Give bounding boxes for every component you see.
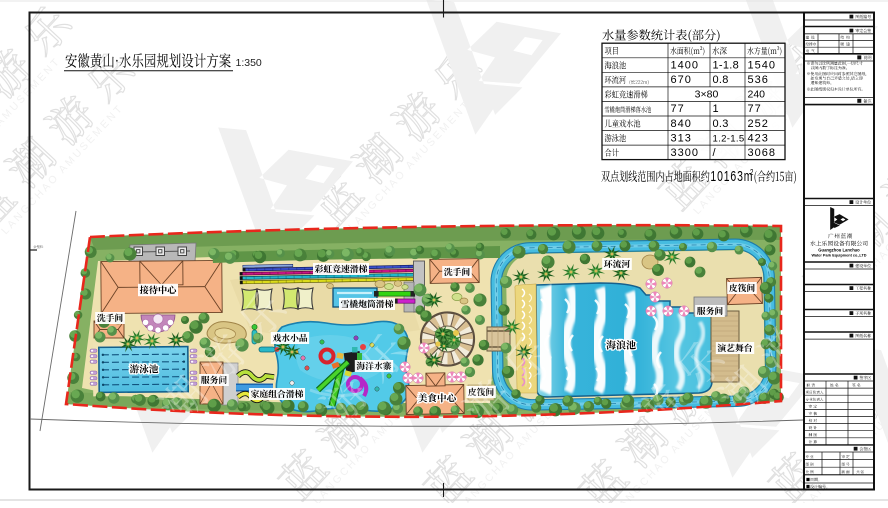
svg-text:0.8: 0.8 [713, 74, 729, 86]
svg-text:3300: 3300 [671, 147, 699, 159]
svg-text:0.3: 0.3 [713, 118, 729, 130]
svg-text:77: 77 [671, 103, 685, 115]
svg-text:313: 313 [671, 132, 692, 144]
svg-text:1: 1 [713, 103, 719, 115]
svg-text:2: 2 [750, 167, 753, 177]
svg-text:Water Park Equipment co.,LTD: Water Park Equipment co.,LTD [811, 254, 866, 258]
svg-text:3068: 3068 [748, 147, 776, 159]
svg-text:1540: 1540 [748, 60, 776, 72]
svg-text:1400: 1400 [671, 60, 699, 72]
svg-text:Guangzhou Lanchao: Guangzhou Lanchao [818, 248, 860, 253]
svg-text:840: 840 [671, 118, 692, 130]
svg-text:252: 252 [748, 118, 769, 130]
svg-text:1.2-1.5: 1.2-1.5 [713, 133, 745, 144]
svg-text:77: 77 [748, 103, 762, 115]
svg-text:10163m: 10163m [710, 168, 753, 184]
svg-text:423: 423 [748, 132, 769, 144]
svg-text:670: 670 [671, 74, 692, 86]
svg-text:240: 240 [748, 89, 766, 101]
svg-text:536: 536 [748, 74, 769, 86]
svg-text:1-1.8: 1-1.8 [713, 60, 740, 72]
svg-text:1:350: 1:350 [236, 57, 262, 69]
svg-text:3×80: 3×80 [695, 89, 719, 101]
